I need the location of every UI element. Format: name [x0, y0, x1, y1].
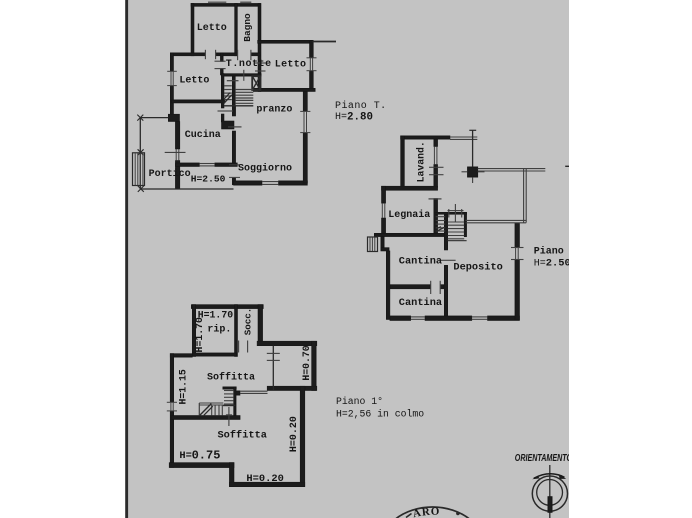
- svg-text:Soffitta: Soffitta: [207, 372, 255, 384]
- svg-text:H=1.70: H=1.70: [194, 317, 205, 352]
- svg-text:Cantina: Cantina: [399, 297, 442, 309]
- svg-text:Bagno: Bagno: [242, 13, 253, 42]
- svg-text:H=0.20: H=0.20: [289, 416, 300, 452]
- svg-text:Piano T.: Piano T.: [335, 100, 387, 112]
- svg-text:Piano: Piano: [534, 246, 564, 258]
- svg-text:Letto: Letto: [179, 76, 209, 87]
- svg-text:Portico: Portico: [149, 168, 191, 180]
- svg-text:rip.: rip.: [207, 324, 231, 336]
- svg-text:Soggiorno: Soggiorno: [238, 163, 292, 175]
- svg-text:Deposito: Deposito: [453, 262, 502, 274]
- svg-text:2.80: 2.80: [347, 112, 373, 124]
- svg-text:Letto: Letto: [275, 59, 307, 70]
- svg-text:T.notte: T.notte: [226, 59, 272, 70]
- svg-text:2.50: 2.50: [546, 258, 571, 270]
- svg-text:H=2,56 in colmo: H=2,56 in colmo: [336, 408, 424, 419]
- svg-text:H=: H=: [534, 258, 546, 269]
- svg-text:Soffitta: Soffitta: [218, 429, 267, 441]
- svg-text:Lavand.: Lavand.: [415, 141, 426, 182]
- svg-text:pranzo: pranzo: [256, 104, 292, 115]
- svg-text:Socc.: Socc.: [243, 308, 254, 336]
- svg-text:H=0.70: H=0.70: [301, 345, 312, 380]
- svg-text:Cantina: Cantina: [399, 255, 442, 267]
- svg-text:ORIENTAMENTO: ORIENTAMENTO: [515, 452, 573, 463]
- svg-text:H=1.15: H=1.15: [177, 369, 188, 404]
- svg-text:H=: H=: [179, 450, 191, 462]
- svg-text:H=2.50: H=2.50: [191, 174, 226, 185]
- svg-text:O: O: [431, 506, 440, 518]
- svg-text:Legnaia: Legnaia: [388, 209, 430, 221]
- svg-text:H=: H=: [335, 112, 347, 123]
- svg-text:Piano 1°: Piano 1°: [336, 396, 383, 407]
- svg-text:0.75: 0.75: [192, 448, 221, 462]
- svg-text:Letto: Letto: [197, 23, 227, 34]
- svg-text:H=0.20: H=0.20: [246, 473, 283, 485]
- svg-text:Cucina: Cucina: [185, 129, 221, 141]
